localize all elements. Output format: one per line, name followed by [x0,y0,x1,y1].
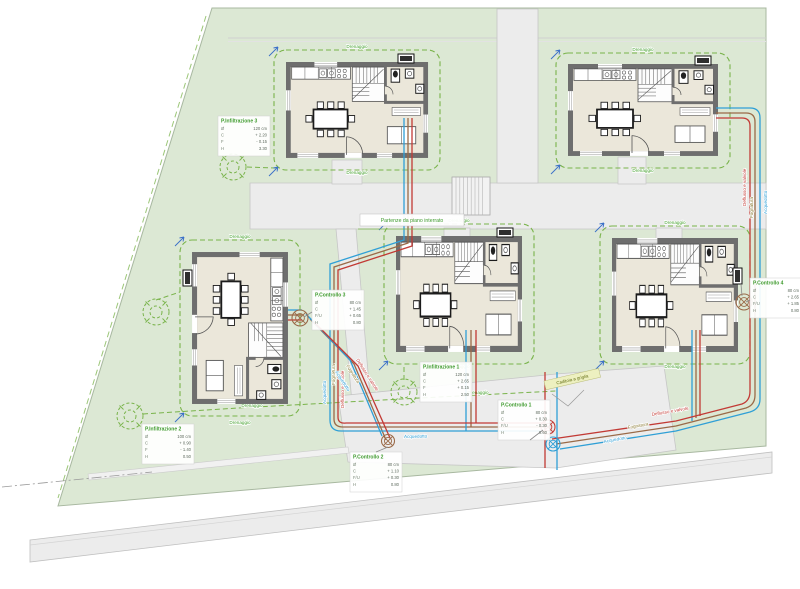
window [568,91,573,110]
info-row-key: H [501,430,504,435]
washbasin [257,391,266,400]
info-row-key: C [221,133,224,138]
drain-label: Drenaggio [632,168,654,173]
info-row-value: 2.50 [461,392,470,397]
info-row-key: F/U [753,301,760,306]
chair [630,302,635,310]
dining-table [221,281,240,317]
info-row-value: + 2.65 [457,379,469,384]
stairs [638,69,672,102]
chair [228,319,235,326]
info-row-value: 80 cm [350,300,362,305]
door-gap [448,346,463,352]
chair [328,130,334,137]
chair [349,116,355,123]
toilet-bowl [707,248,711,256]
chair [623,129,630,135]
exterior-stairs [452,177,490,215]
chair [328,102,334,109]
info-row-value: 120 cm [455,372,469,377]
meter-box-inner [400,56,412,61]
window [664,151,680,156]
info-row-value: 0.80 [353,320,362,325]
window [297,153,318,158]
info-row-value: 100 cm [177,434,191,439]
window [396,270,400,294]
cabinet [706,292,731,302]
north-road [497,9,538,183]
drain-label: Drenaggio [632,47,654,52]
toilet-bowl [272,366,279,371]
stairs [455,242,484,284]
chair [658,285,663,293]
chair [451,301,456,309]
house-4-center [396,236,522,352]
chair [589,115,596,121]
washbasin [705,85,714,94]
meter-box-inner [697,58,709,63]
window [314,62,337,67]
chair [213,285,220,292]
drain-label: Drenaggio [229,420,251,425]
info-row-value: 80 cm [536,410,548,415]
stairs [352,67,384,101]
info-row-key: F/U [501,423,508,428]
house-2-top-right [568,64,718,156]
info-box-pi3: P.Infiltrazione 3Ø120 cmC+ 2.20F- 0.15H3… [218,116,270,156]
house-5-right [612,238,738,352]
chair [658,319,663,327]
chair [601,129,608,135]
chair [338,130,344,137]
info-row-key: C [423,379,426,384]
bidet [718,246,726,257]
info-row-value: 0.80 [391,482,400,487]
info-row-value: + 0.30 [535,417,547,422]
drain-label: Drenaggio [664,364,686,369]
chair [649,319,654,327]
pipe-label-sewer: Fognatura [331,364,336,385]
chair [433,318,438,326]
meter-box-inner [185,272,190,284]
info-box-title: P.Controllo 1 [501,403,532,409]
info-row-key: C [501,417,504,422]
dining-table [313,109,347,128]
info-box-title: P.Infiltrazione 3 [221,119,258,125]
cabinet [234,365,242,395]
chair [433,284,438,292]
info-box-pc3: P.Controllo 3Ø80 cmC+ 1.45F/U+ 0.65H0.80 [312,290,364,330]
chair [306,116,312,123]
stairs [671,244,700,285]
info-row-value: + 0.65 [349,313,361,318]
info-row-key: C [753,295,756,300]
info-row-value: - 0.15 [256,139,267,144]
info-row-value: 0.80 [791,308,800,313]
window [580,151,602,156]
chair [424,318,429,326]
info-row-value: 80 cm [788,288,800,293]
info-box-pc2: P.Controllo 2Ø80 cmC+ 1.10F/U+ 0.30H0.80 [350,452,402,492]
bidet [694,71,703,80]
info-row-key: F [423,385,426,390]
washbasin [511,263,518,274]
info-box-pi2: P.Infiltrazione 2Ø100 cmC+ 0.90F- 1.40H0… [142,424,194,464]
meter-box-inner [735,270,740,282]
chair [634,115,641,121]
chair [242,308,249,315]
info-box-title: P.Controllo 3 [315,293,346,299]
chair [213,297,220,304]
pipe-label-water: Acquedotto [322,380,327,404]
chair [317,102,323,109]
toilet-bowl [491,247,495,255]
house-3-left [192,252,288,404]
chair [667,302,672,310]
door-gap [664,346,679,352]
chair [649,285,654,293]
drain-label: Drenaggio [229,234,251,239]
info-row-value: + 0.30 [387,475,399,480]
door-gap [192,315,197,333]
meter-box-inner [499,230,511,235]
window [217,399,235,404]
info-row-value: + 2.20 [255,133,267,138]
window [612,272,616,296]
door-gap [630,151,648,156]
window [283,282,288,306]
window [713,114,718,131]
chair [213,308,220,315]
info-row-value: 120 cm [253,126,267,131]
chair [623,102,630,108]
chair [242,297,249,304]
window [239,252,259,257]
site-plan-canvas: DrenaggioDrenaggioDrenaggioDrenaggioDren… [0,0,800,589]
door-gap [345,153,362,158]
info-row-key: F/U [353,475,360,480]
chair [612,102,619,108]
chair [612,129,619,135]
window [637,238,657,244]
info-row-key: H [423,392,426,397]
window [286,90,291,110]
pipe-label-valves: Deflusso e valvole [742,168,747,206]
bidet [502,245,510,256]
dining-table [597,109,633,127]
info-row-key: F [145,447,148,452]
info-row-value: - 0.30 [536,423,547,428]
dining-table [636,294,666,317]
house-1-top-left [286,62,428,158]
chair [317,130,323,137]
info-row-value: + 0.15 [457,385,469,390]
info-row-key: F/U [315,313,322,318]
info-row-value: + 1.85 [787,301,799,306]
chair [640,285,645,293]
toilet-bowl [681,72,686,79]
central-road [250,183,766,229]
window [598,64,622,69]
info-row-key: H [315,320,318,325]
drain-label: Drenaggio [346,44,368,49]
info-row-value: - 1.40 [180,447,191,452]
info-row-key: H [221,146,224,151]
washbasin [416,84,424,93]
window [421,236,441,242]
info-box-title: P.Infiltrazione 1 [423,365,460,371]
stairs [249,323,283,357]
info-row-value: + 1.10 [387,469,399,474]
info-box-pc4: P.Controllo 4Ø80 cmC+ 2.65F/U+ 1.85H0.80 [750,278,800,318]
chair [242,285,249,292]
window [477,346,490,352]
window [406,346,424,352]
bidet [272,380,281,389]
info-row-key: H [145,454,148,459]
info-box-pc1: P.Controllo 1Ø80 cmC+ 0.30F/U- 0.30H0.60 [498,400,550,440]
info-box-title: P.Controllo 4 [753,281,784,287]
info-box-title: P.Infiltrazione 2 [145,427,182,433]
chair [424,284,429,292]
chair [601,102,608,108]
info-row-key: C [353,469,356,474]
info-row-key: F [221,139,224,144]
cabinet [392,107,420,115]
chair [338,102,344,109]
drain-label: Drenaggio [346,170,368,175]
window [622,346,640,352]
chair [414,301,419,309]
pipe-label-water: Acquedotto [404,434,428,439]
window [192,264,197,286]
info-row-value: 80 cm [388,462,400,467]
drawing-page: DrenaggioDrenaggioDrenaggioDrenaggioDren… [0,0,800,589]
drain-label: Drenaggio [664,220,686,225]
dining-table [420,293,450,316]
info-row-key: H [353,482,356,487]
pipe-label-sewer: Fognatura [749,197,754,218]
info-row-value: + 0.90 [179,441,191,446]
info-row-key: C [315,307,318,312]
chair [228,273,235,280]
chair [442,318,447,326]
window [518,299,522,321]
info-row-value: + 2.65 [787,295,799,300]
chair [640,319,645,327]
info-row-value: 3.30 [259,146,268,151]
info-box-pi1: P.Infiltrazione 1Ø120 cmC+ 2.65F+ 0.15H2… [420,362,472,402]
chair [442,284,447,292]
toilet-bowl [393,71,398,78]
info-row-key: H [753,308,756,313]
info-row-key: C [145,441,148,446]
basement-note-text: Partenze da piano interrato [381,218,444,224]
window [192,349,197,365]
bidet [405,69,414,78]
window [423,115,428,133]
info-box-title: P.Controllo 2 [353,455,384,461]
pipe-label-water: Acquedotto [763,190,768,214]
window [377,153,392,158]
info-row-value: + 1.45 [349,307,361,312]
cabinet [490,291,515,301]
info-row-value: 0.50 [183,454,192,459]
cabinet [680,108,710,116]
